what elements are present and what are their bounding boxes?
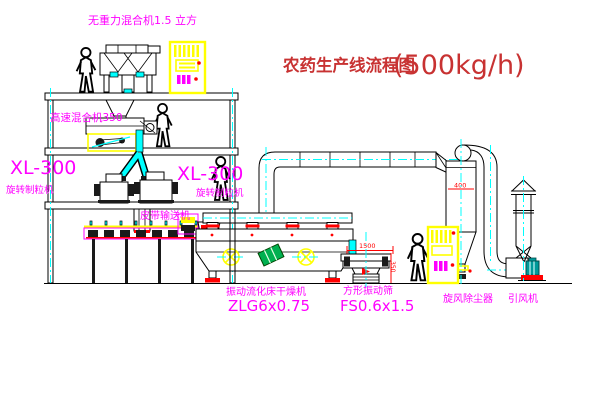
indicator-dot	[194, 77, 198, 81]
induced-draft-fan	[506, 258, 546, 281]
label-granulator-left-name: 旋转制粒机	[6, 184, 54, 196]
label-gravity-free-mixer: 无重力混合机1.5 立方	[88, 13, 197, 27]
dim-cyclone: 400	[454, 182, 466, 190]
indicator-dot	[452, 231, 456, 235]
indicator-dot	[197, 61, 201, 65]
label-cyclone: 旋风除尘器	[443, 292, 493, 305]
label-dryer-model: ZLG6x0.75	[228, 297, 310, 315]
fluid-bed-dryer	[196, 213, 360, 283]
control-cabinet-right	[428, 227, 458, 283]
granulator-right	[134, 172, 178, 203]
granulator-left	[94, 174, 134, 203]
person-figure	[77, 48, 96, 92]
label-fan: 引风机	[508, 292, 538, 305]
label-high-speed-mixer: 高速混合机350	[50, 111, 123, 124]
exhaust-duct	[259, 147, 460, 215]
label-belt-conveyor: 皮带输送机	[140, 209, 190, 222]
label-sieve-model: FS0.6x1.5	[340, 297, 414, 315]
control-cabinet-top	[170, 42, 205, 93]
label-granulator-left-model: XL-300	[10, 157, 76, 179]
dim-sieve-height: 350	[389, 261, 396, 273]
label-granulator-right-name: 旋转制粒机	[196, 187, 244, 199]
person-figure	[408, 234, 428, 280]
indicator-dot	[468, 269, 471, 272]
label-granulator-right-model: XL-300	[177, 163, 243, 185]
cad-canvas: 400	[0, 0, 600, 403]
fan-motor-icon	[526, 258, 539, 275]
gravity-free-mixer	[100, 45, 160, 93]
label-sieve-name: 方形振动筛	[343, 284, 393, 297]
slab-top	[45, 93, 238, 100]
dim-sieve-length: 1500	[359, 242, 376, 250]
indicator-dot	[451, 263, 455, 267]
page-title-capacity: (500kg/h)	[393, 50, 525, 81]
